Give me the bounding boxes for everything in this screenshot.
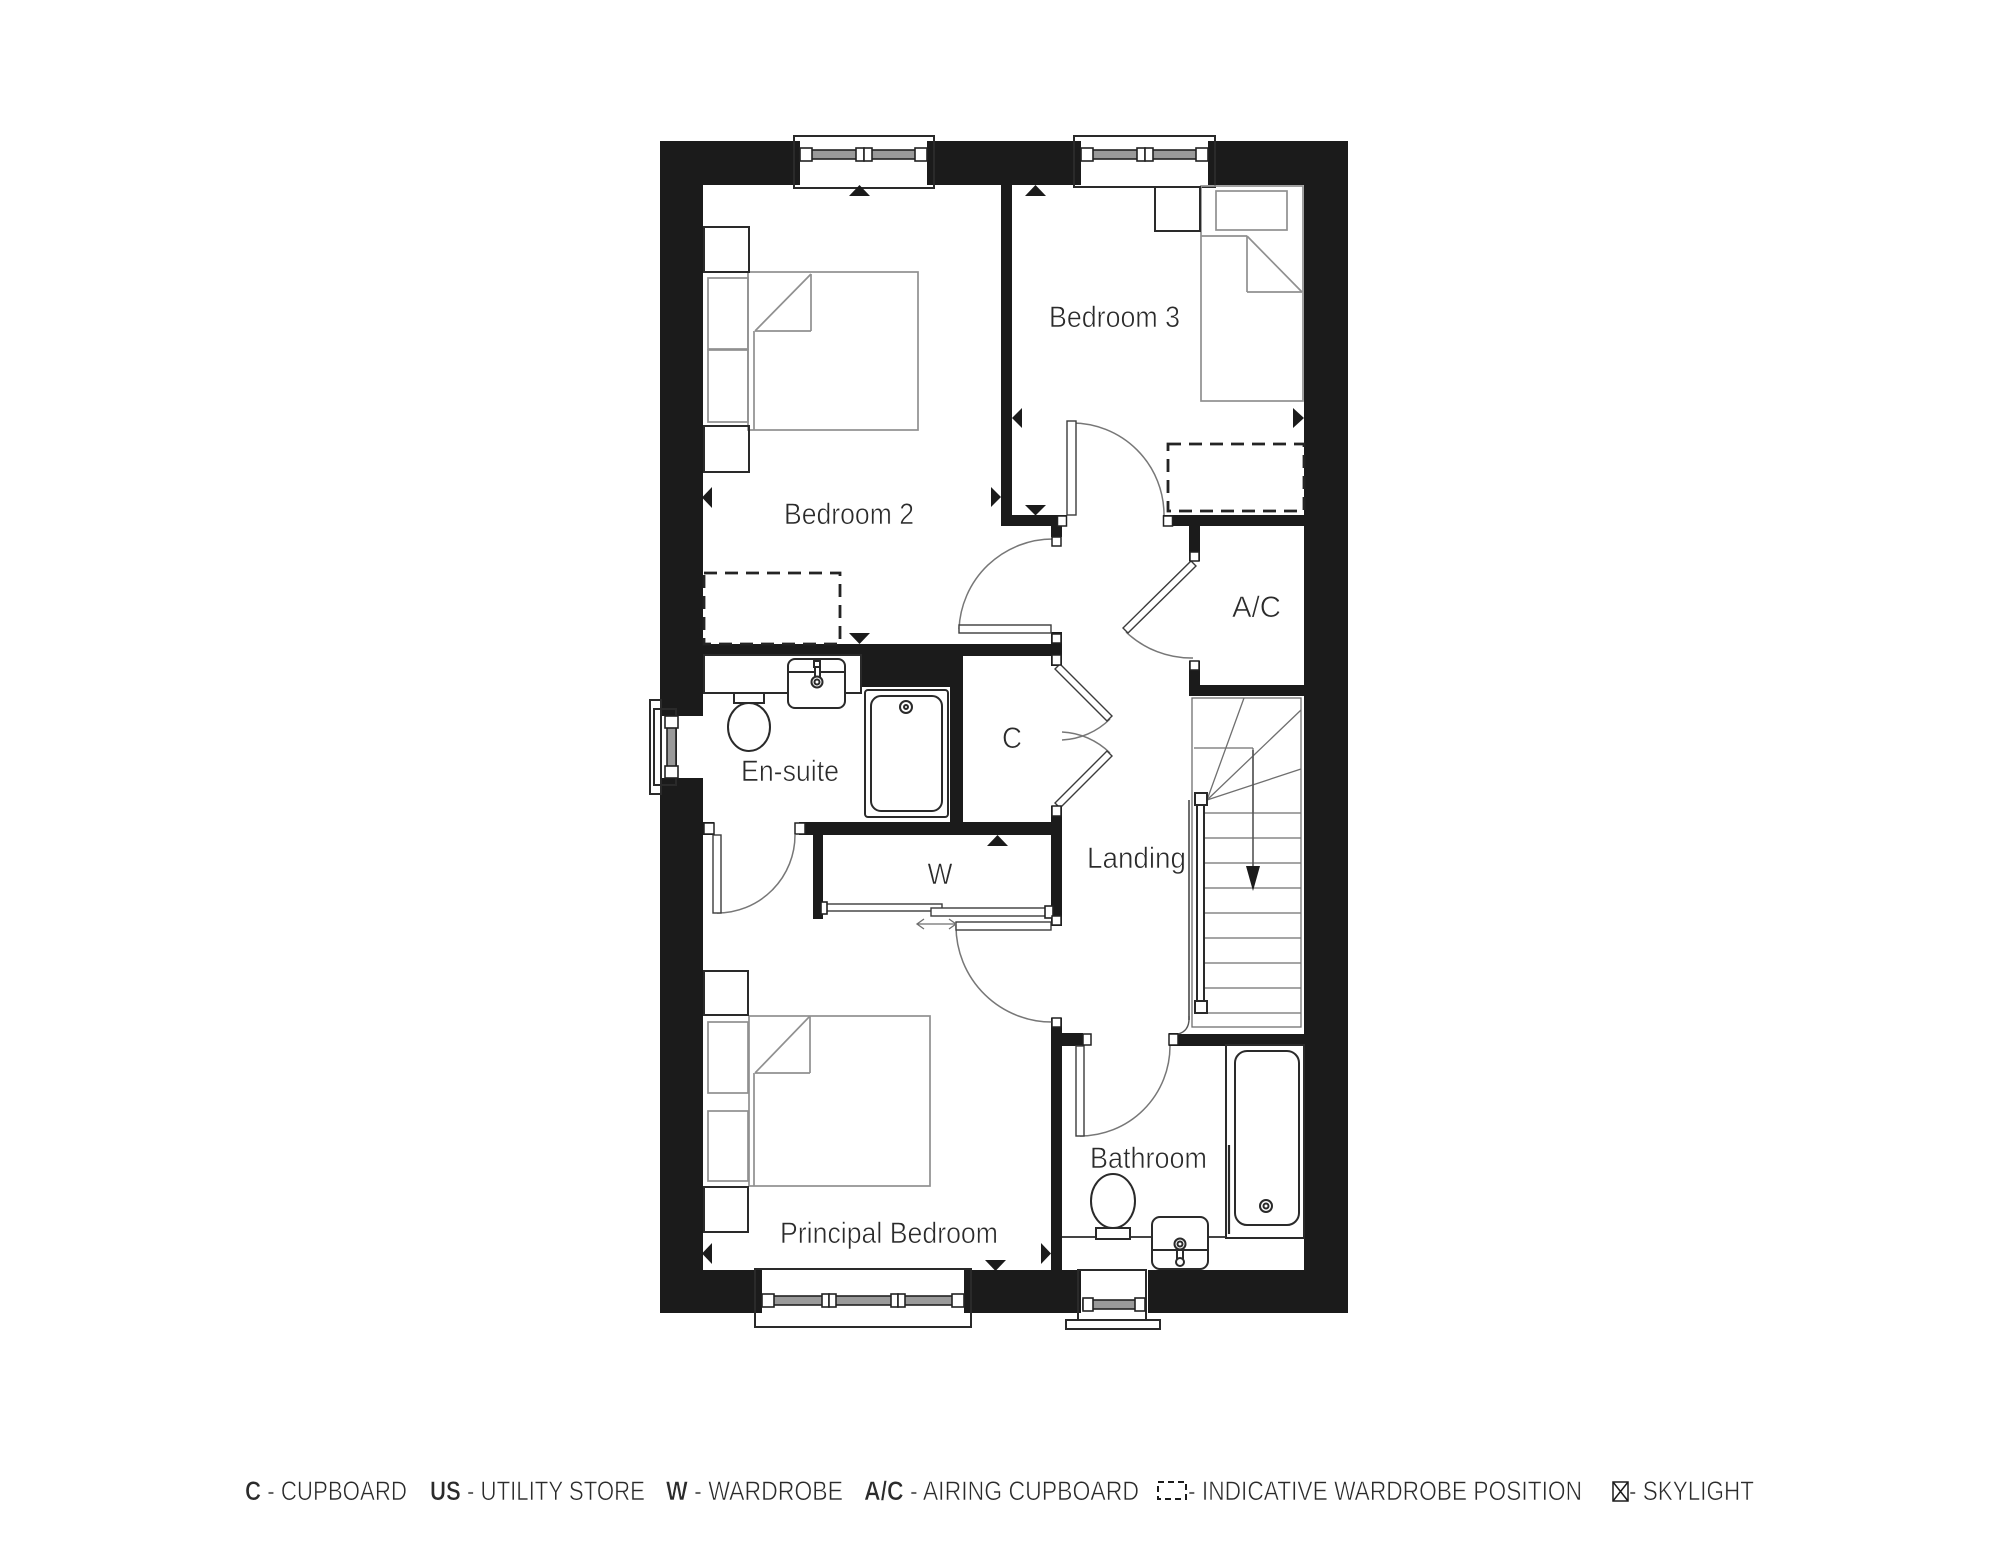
svg-text:Principal Bedroom: Principal Bedroom [780,1217,998,1250]
svg-text:- SKYLIGHT: - SKYLIGHT [1629,1476,1754,1506]
svg-text:US - UTILITY STORE: US - UTILITY STORE [430,1476,645,1506]
svg-text:A/C: A/C [1232,591,1281,624]
svg-text:Landing: Landing [1087,842,1186,875]
svg-text:- INDICATIVE WARDROBE POSITION: - INDICATIVE WARDROBE POSITION [1188,1476,1582,1506]
svg-text:A/C - AIRING CUPBOARD: A/C - AIRING CUPBOARD [864,1476,1139,1506]
svg-text:W - WARDROBE: W - WARDROBE [666,1476,843,1506]
svg-text:Bedroom 2: Bedroom 2 [784,498,914,531]
svg-text:W: W [928,858,954,891]
svg-text:Bedroom 3: Bedroom 3 [1049,301,1180,334]
svg-text:Bathroom: Bathroom [1090,1142,1207,1175]
svg-text:En-suite: En-suite [741,755,839,788]
svg-text:C - CUPBOARD: C - CUPBOARD [245,1476,407,1506]
svg-text:C: C [1002,722,1022,755]
